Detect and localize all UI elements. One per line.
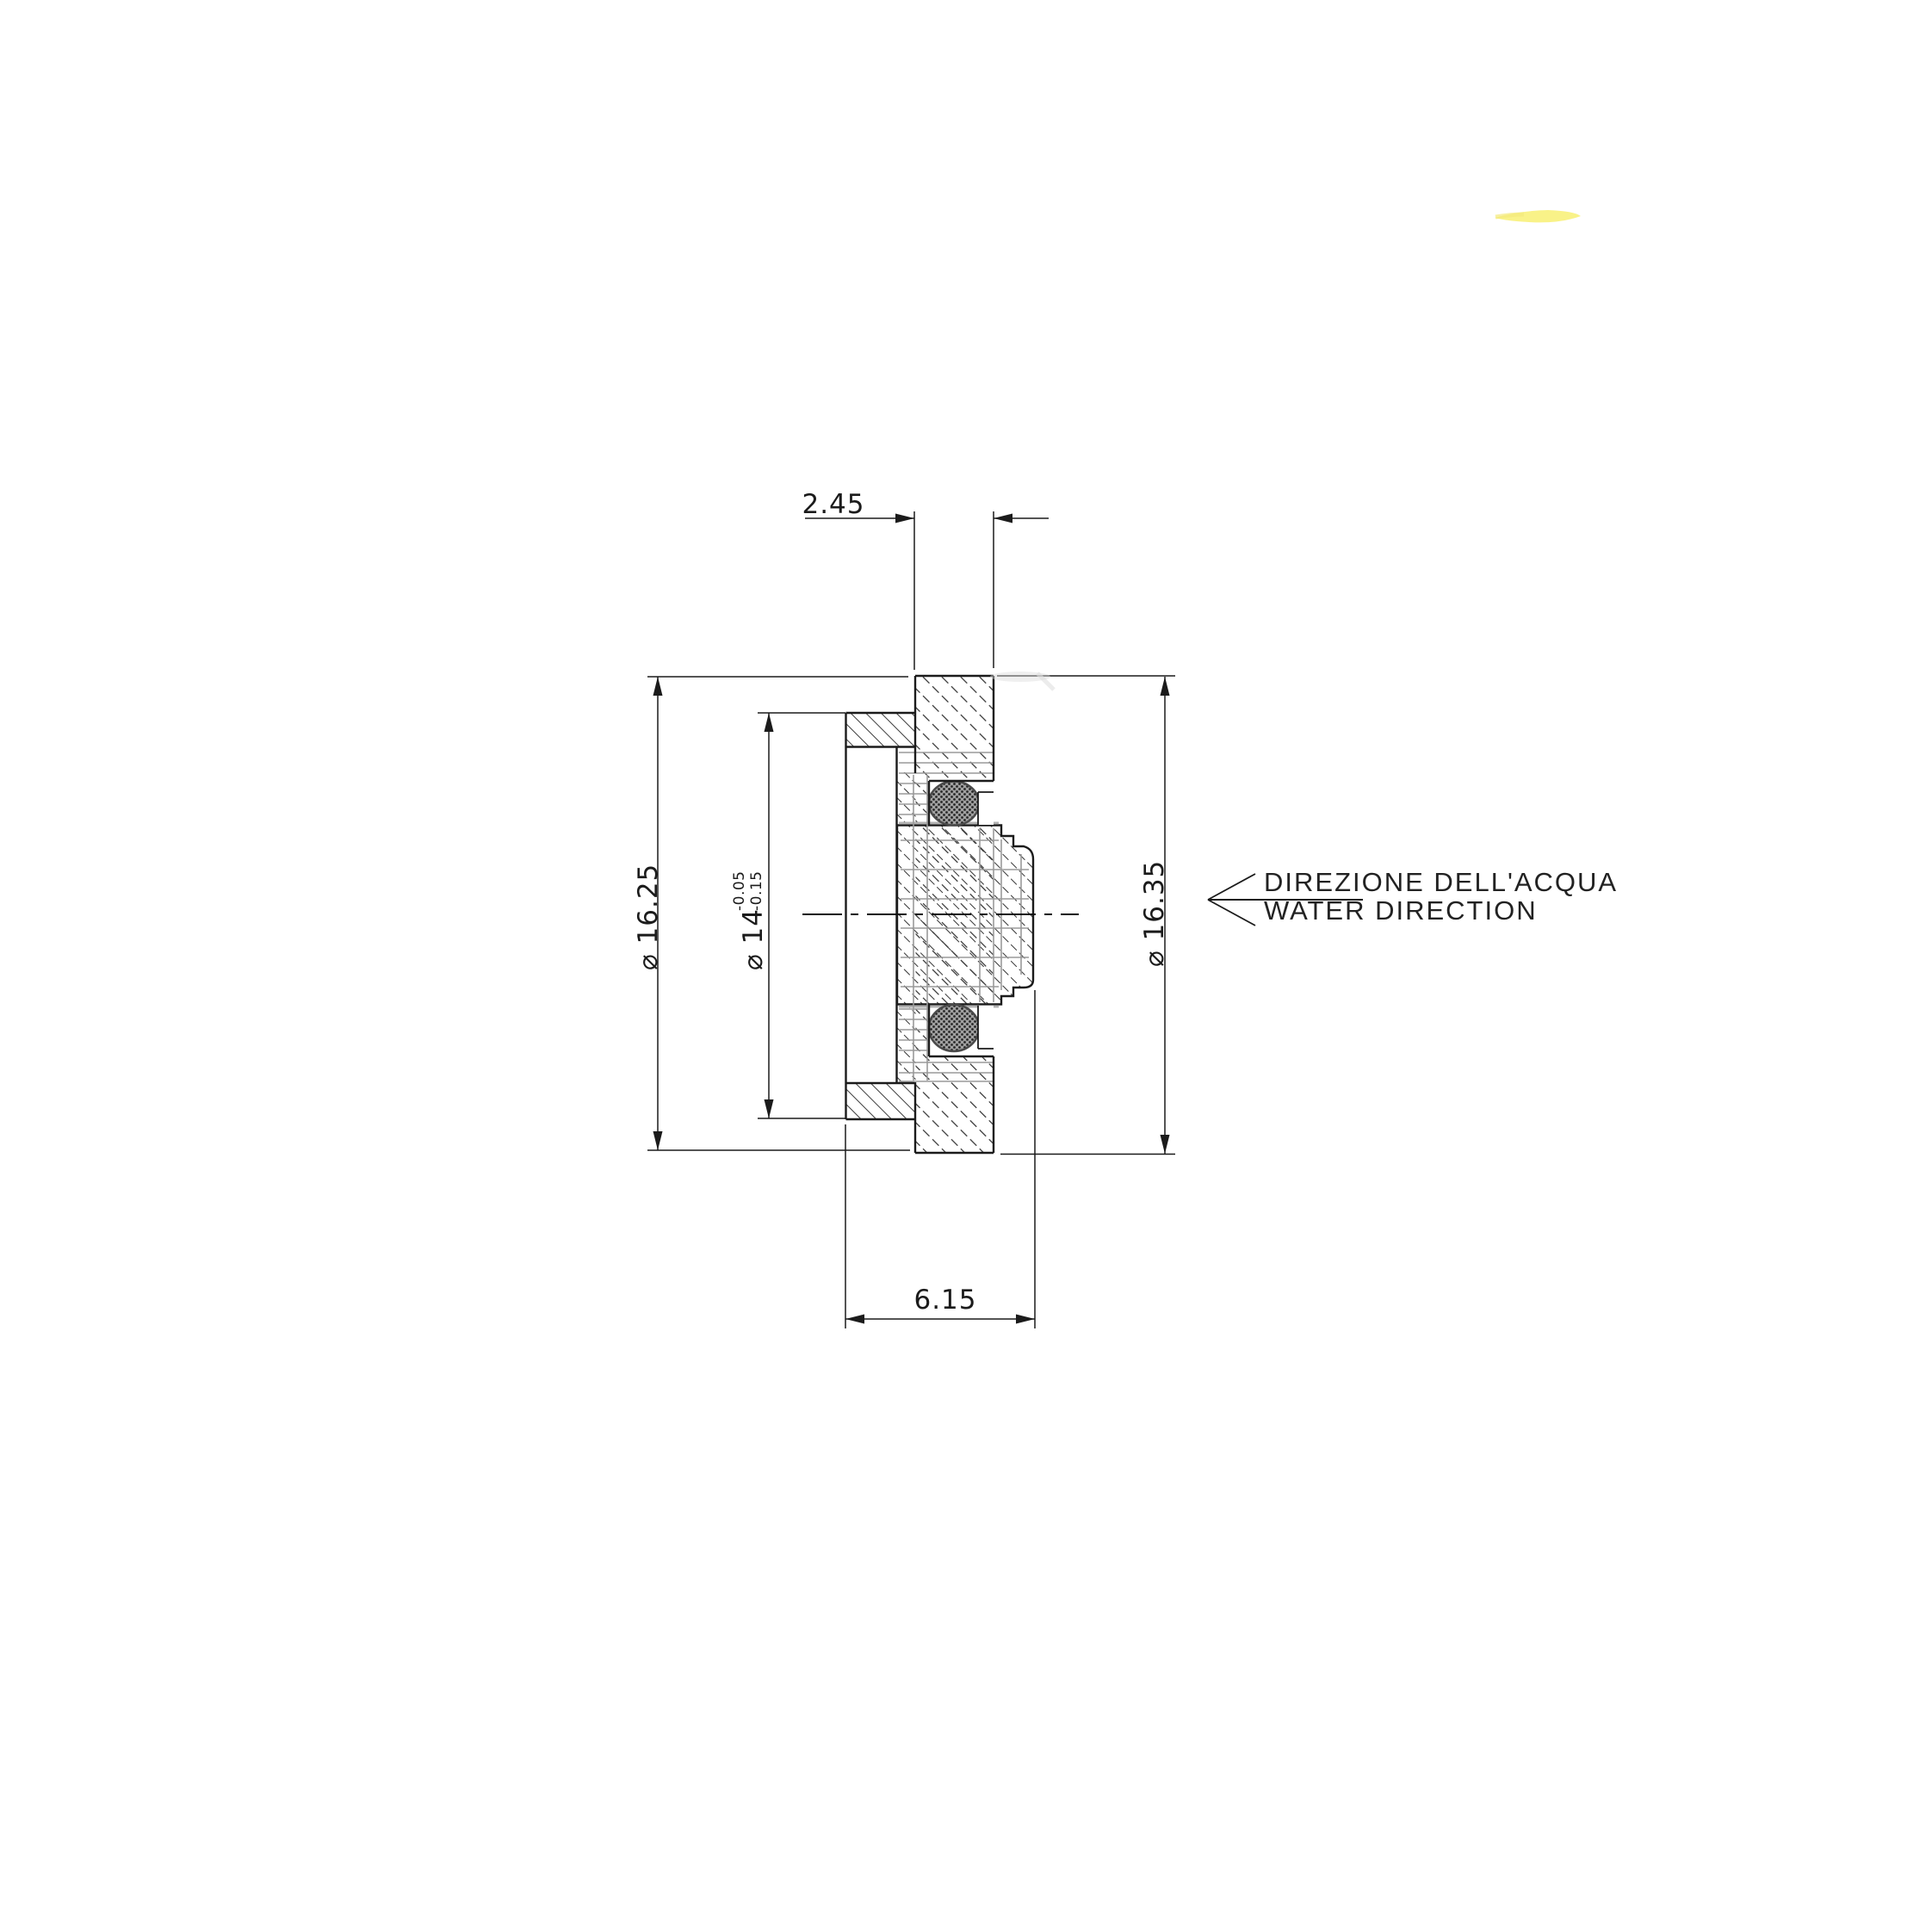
technical-drawing: 2.45 ⌀ 16.25 ⌀ 14 -0.05 -0.15 ⌀ 16.35 [0, 0, 1932, 1932]
flow-note-line1: DIREZIONE DELL'ACQUA [1264, 867, 1618, 897]
o-ring-top [929, 782, 979, 826]
dim-outer-left-label: ⌀ 16.25 [633, 864, 664, 970]
dim-bore-label: ⌀ 14 [738, 908, 769, 970]
dim-bore-tolerance-lower: -0.15 [748, 871, 765, 912]
highlighter-tail [1495, 214, 1524, 217]
groove-step-top-white [978, 782, 994, 825]
flow-note-line2: WATER DIRECTION [1264, 895, 1538, 926]
groove-step-bottom-white [978, 1006, 994, 1049]
dim-outer-right-label: ⌀ 16.35 [1139, 860, 1170, 967]
cup-flange-top-section [846, 713, 915, 747]
o-ring-bottom [929, 1005, 979, 1051]
dim-bottom-width-label: 6.15 [913, 1285, 976, 1316]
dim-top-width-label: 2.45 [802, 489, 864, 520]
dim-bore-tolerance-upper: -0.05 [731, 871, 748, 912]
cup-flange-bottom-section [846, 1083, 915, 1119]
